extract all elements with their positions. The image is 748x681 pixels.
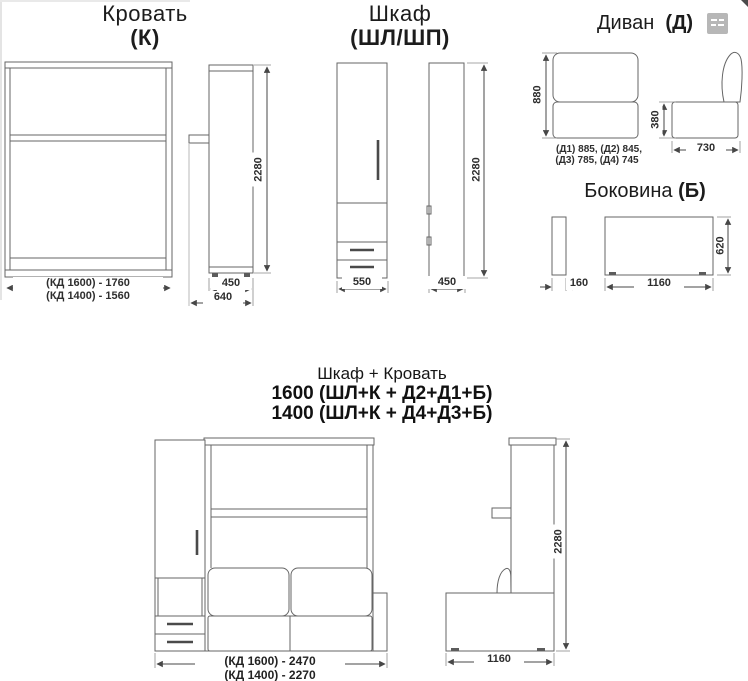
combo-config-1400: 1400 (ШЛ+К + Д4+Д3+Б) <box>232 403 532 425</box>
combo-height-label: 2280 <box>553 525 566 559</box>
side-panel-code: (Б) <box>678 180 706 202</box>
side-panel-thickness-label: 160 <box>566 277 592 290</box>
panel-foot-left <box>609 272 616 275</box>
bed-height-label: 2280 <box>253 153 266 187</box>
sofa-widths-line1-label: (Д1) 885, (Д2) 845, <box>544 144 654 155</box>
combo-seat-foot-right <box>537 648 545 651</box>
combo-config-1600: 1600 (ШЛ+К + Д2+Д1+Б) <box>232 383 532 405</box>
bed-depth-label: 450 <box>211 277 251 290</box>
wardrobe-front-outline <box>337 63 387 278</box>
furniture-dimension-sheet: Кровать (К) Шкаф (ШЛ/ШП) Диван (Д) Боков… <box>0 0 748 681</box>
sofa-backrest <box>553 53 638 102</box>
bed-title: Кровать <box>70 1 220 27</box>
bed-depth-total-label: 640 <box>203 291 243 304</box>
combo-side-panel <box>373 593 387 651</box>
side-panel-height-label: 620 <box>715 229 728 263</box>
bed-front-outline <box>5 62 172 277</box>
combo-width-1400-label: (КД 1400) - 2270 <box>195 668 345 681</box>
wardrobe-depth-label: 450 <box>427 276 467 289</box>
drawing-canvas <box>0 0 748 681</box>
bed-width-1600-label: (КД 1600) - 1760 <box>13 277 163 290</box>
side-panel-edge-outline <box>552 217 566 275</box>
side-panel-title-text: Боковина <box>584 180 672 202</box>
combo-depth-label: 1160 <box>474 653 524 666</box>
sofa-side-backrest <box>722 52 742 102</box>
sofa-height-label: 880 <box>532 78 545 112</box>
combo-seat-foot-left <box>451 648 459 651</box>
wardrobe-code: (ШЛ/ШП) <box>325 25 475 51</box>
sofa-title-text: Диван <box>597 12 654 34</box>
combo-bed-cap <box>204 438 374 445</box>
scan-corner-artifact <box>741 0 748 7</box>
combo-seat-box <box>446 593 554 651</box>
combo-title: Шкаф + Кровать <box>232 364 532 384</box>
sofa-depth-label: 730 <box>686 142 726 155</box>
side-panel-title: Боковина (Б) <box>560 180 730 203</box>
sofa-side-view <box>659 52 742 153</box>
wardrobe-front-view <box>337 63 388 293</box>
bed-width-1400-label: (КД 1400) - 1560 <box>13 290 163 303</box>
wardrobe-title: Шкаф <box>325 1 475 27</box>
bed-front-view <box>5 62 172 288</box>
wardrobe-side-outline <box>429 63 464 278</box>
sofa-seat-height-label: 380 <box>650 103 663 137</box>
bed-handle <box>189 135 209 143</box>
combo-cushion-left <box>208 568 289 616</box>
bed-side-outline <box>209 65 253 273</box>
side-panel-length-label: 1160 <box>634 277 684 290</box>
sofa-front-view <box>542 53 651 149</box>
wardrobe-height-label: 2280 <box>471 153 484 187</box>
combo-width-1600-label: (КД 1600) - 2470 <box>195 654 345 668</box>
sofa-side-seat <box>672 102 738 138</box>
combo-backrest-curve <box>497 568 511 593</box>
combo-panel-cap <box>509 438 556 445</box>
sofa-code: (Д) <box>665 12 693 34</box>
placeholder-glyph-bar <box>718 24 724 26</box>
panel-foot-right <box>699 272 706 275</box>
wardrobe-width-label: 550 <box>342 276 382 289</box>
sofa-widths-line2-label: (Д3) 785, (Д4) 745 <box>542 155 652 166</box>
placeholder-glyph-bar <box>711 19 717 21</box>
image-placeholder-icon <box>707 13 728 34</box>
sofa-seat <box>553 102 638 138</box>
bed-code: (К) <box>70 25 220 51</box>
combo-side-handle <box>492 508 511 518</box>
side-panel-face-outline <box>605 217 713 275</box>
combo-front-view <box>155 438 387 668</box>
combo-cushion-right <box>291 568 372 616</box>
placeholder-glyph-bar <box>719 19 724 21</box>
sofa-title: Диван (Д) <box>565 12 725 35</box>
placeholder-glyph-bar <box>711 24 716 26</box>
combo-side-view <box>446 438 570 666</box>
